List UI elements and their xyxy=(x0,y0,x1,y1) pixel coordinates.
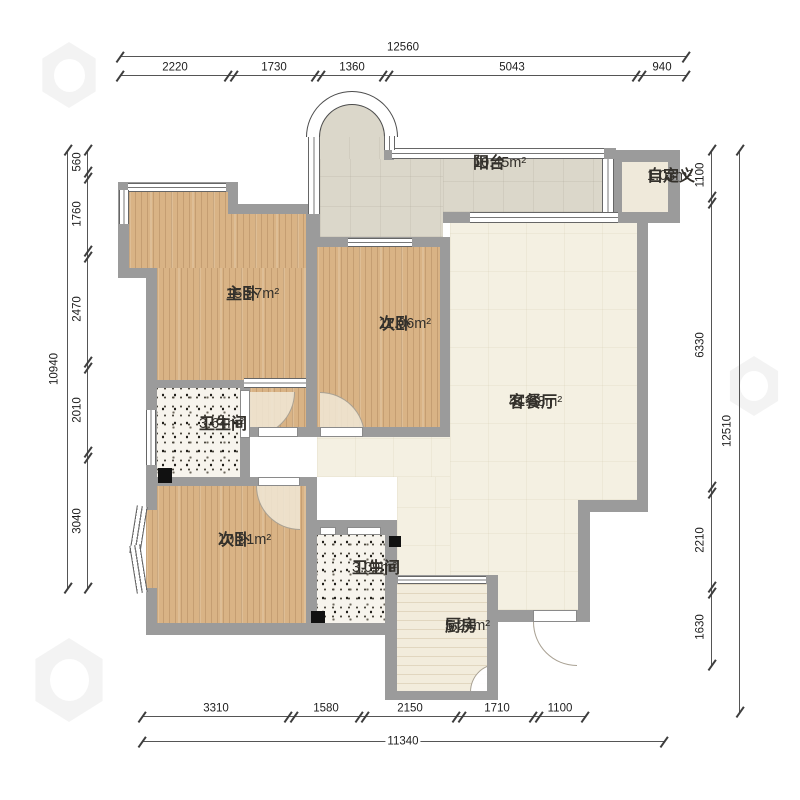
room-area: 10.45m² xyxy=(473,155,526,172)
dim-label: 2470 xyxy=(72,294,84,324)
room-area: 15.57m² xyxy=(226,286,279,303)
dim-label: 1100 xyxy=(546,703,575,715)
wall xyxy=(385,520,397,700)
master-sliding-door[interactable] xyxy=(244,378,306,388)
wall xyxy=(385,691,498,700)
wall xyxy=(637,223,648,505)
brand-watermark-icon xyxy=(30,638,108,722)
window[interactable] xyxy=(384,136,395,150)
dim-label: 1760 xyxy=(72,199,84,229)
entry-door-panel[interactable] xyxy=(533,610,577,622)
wall xyxy=(228,204,312,214)
watermark-circle xyxy=(740,371,768,401)
dim-line-top-total xyxy=(120,56,686,57)
dim-label: 2010 xyxy=(72,395,84,425)
room-living-dining[interactable] xyxy=(450,223,637,500)
watermark-circle xyxy=(54,59,85,92)
dim-label: 12510 xyxy=(722,413,734,449)
dim-label: 12560 xyxy=(385,42,421,54)
dim-line-right-total xyxy=(739,150,740,712)
room-bedroom-b[interactable] xyxy=(146,510,157,588)
dim-label: 3040 xyxy=(72,506,84,536)
dim-line-top-segments xyxy=(120,75,686,76)
wall xyxy=(307,212,320,239)
brand-watermark-icon xyxy=(726,356,782,416)
brand-watermark-icon xyxy=(38,42,100,108)
duct-shaft xyxy=(311,611,325,623)
balcony-sliding-door[interactable] xyxy=(470,212,618,223)
wall xyxy=(306,214,317,437)
room-area: 3.64m² xyxy=(199,416,244,433)
window[interactable] xyxy=(308,137,320,214)
wall xyxy=(668,150,680,223)
room-area: 3.09m² xyxy=(352,560,397,577)
room-area: 41.98m² xyxy=(509,394,562,411)
dim-label: 2210 xyxy=(695,525,707,555)
dim-label: 2220 xyxy=(160,62,190,74)
window[interactable] xyxy=(602,159,614,212)
vestibule-door-panel[interactable] xyxy=(258,427,298,437)
dim-label: 5043 xyxy=(497,62,527,74)
room-area: 1.03m² xyxy=(647,168,692,185)
dim-label: 10940 xyxy=(49,351,61,387)
door-arc-entry[interactable] xyxy=(533,622,577,666)
hallway[interactable] xyxy=(397,477,450,584)
room-area: 5.24m² xyxy=(445,618,490,635)
wall xyxy=(146,588,157,623)
watermark-circle xyxy=(50,659,89,701)
dim-label: 1710 xyxy=(482,703,512,715)
dim-label: 11340 xyxy=(385,736,420,748)
dim-label: 560 xyxy=(72,150,84,173)
duct-shaft xyxy=(389,536,401,547)
dim-line-left-total xyxy=(67,150,68,588)
dim-label: 2150 xyxy=(395,703,425,715)
wall xyxy=(146,380,250,388)
wall xyxy=(146,623,397,635)
room-master-bedroom[interactable] xyxy=(129,214,307,270)
wall xyxy=(578,500,648,512)
wall xyxy=(614,162,622,212)
bedroom-b-door-panel[interactable] xyxy=(258,477,300,486)
room-master-bedroom[interactable] xyxy=(157,268,307,380)
wall xyxy=(146,268,157,380)
dim-label: 1630 xyxy=(695,612,707,642)
room-area: 10.91m² xyxy=(218,532,271,549)
room-balcony[interactable] xyxy=(319,135,385,161)
window[interactable] xyxy=(398,576,486,584)
wall xyxy=(440,237,450,437)
dim-label: 1100 xyxy=(695,161,707,190)
window[interactable] xyxy=(146,410,156,465)
dim-label: 940 xyxy=(650,62,673,74)
duct-shaft xyxy=(158,468,172,483)
bedroom-a-door-panel[interactable] xyxy=(320,427,363,437)
window[interactable] xyxy=(128,183,226,192)
bathroom-b-opening[interactable] xyxy=(320,527,336,535)
room-balcony[interactable] xyxy=(320,159,443,237)
hallway[interactable] xyxy=(317,437,450,477)
bathroom-b-door-panel[interactable] xyxy=(347,527,381,535)
room-area: 11.06m² xyxy=(379,316,431,333)
floor-plan: 阳台 10.45m² 自定义 1.03m² 主卧 15.57m² 次卧 11.0… xyxy=(0,0,800,800)
wall xyxy=(578,512,590,622)
window[interactable] xyxy=(348,238,412,247)
dim-label: 1730 xyxy=(259,62,289,74)
window[interactable] xyxy=(119,190,129,224)
dim-label: 1580 xyxy=(311,703,341,715)
room-bathroom-b[interactable] xyxy=(317,535,385,623)
bay-window[interactable] xyxy=(129,544,147,593)
dim-label: 3310 xyxy=(201,703,231,715)
dim-label: 6330 xyxy=(695,330,707,360)
wall xyxy=(487,577,498,700)
dim-label: 1360 xyxy=(337,62,367,74)
